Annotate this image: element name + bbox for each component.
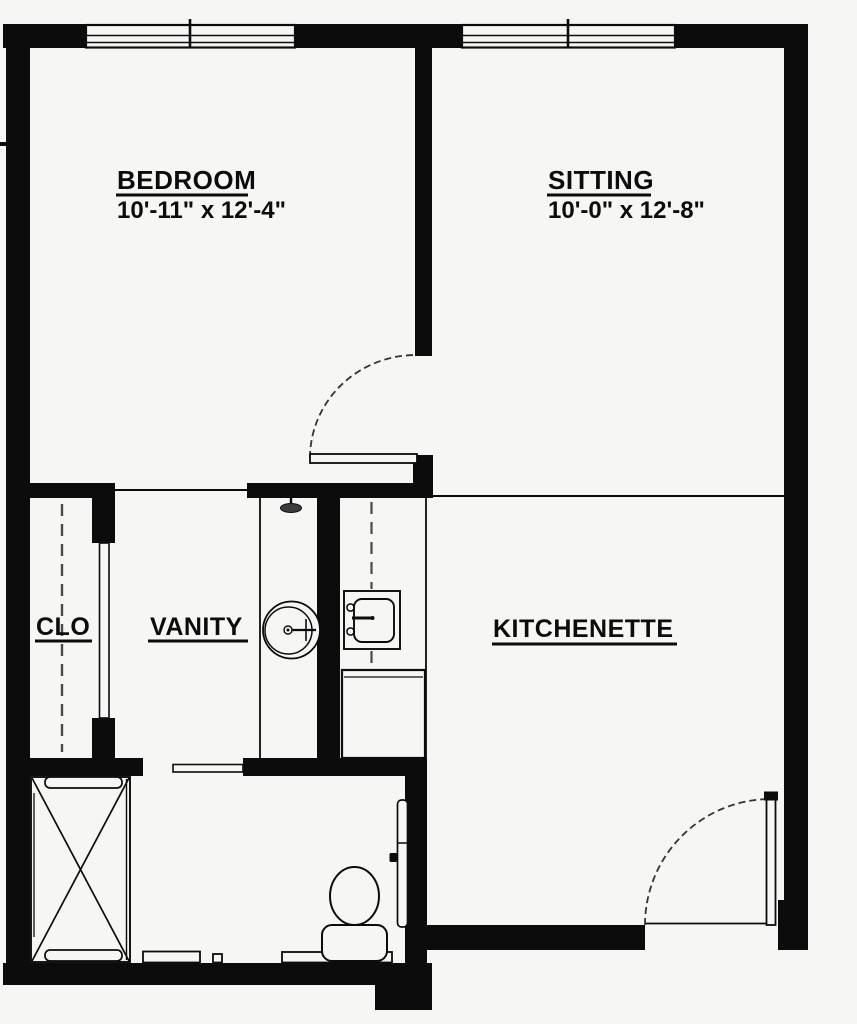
bathroom-door-handle bbox=[390, 853, 398, 862]
wall-bottom-step-block bbox=[375, 963, 432, 1010]
floor-plan-canvas: BEDROOM 10'-11" x 12'-4" SITTING 10'-0" … bbox=[0, 0, 857, 1024]
shower-head-icon bbox=[281, 504, 302, 513]
toilet-bowl bbox=[330, 867, 379, 925]
closet-door-leaf bbox=[100, 543, 110, 718]
room-labels: BEDROOM 10'-11" x 12'-4" SITTING 10'-0" … bbox=[35, 165, 705, 644]
wall-bedroom-south-left bbox=[27, 483, 115, 498]
window-bedroom bbox=[86, 19, 295, 48]
refrigerator bbox=[342, 670, 425, 758]
grab-bar bbox=[143, 952, 200, 963]
wall-closet-right-lower bbox=[92, 718, 115, 760]
bathroom-sliding-door-leaf bbox=[173, 765, 243, 773]
closet-label: CLO bbox=[36, 613, 90, 641]
wall-fixture-small bbox=[213, 954, 222, 963]
wall-right-exterior bbox=[784, 24, 808, 950]
sitting-label: SITTING bbox=[548, 165, 654, 195]
floor-plan-svg: BEDROOM 10'-11" x 12'-4" SITTING 10'-0" … bbox=[0, 0, 857, 1024]
wall-left-tick bbox=[0, 142, 6, 146]
vanity-fixtures bbox=[263, 498, 320, 659]
wall-top-middle bbox=[295, 24, 462, 48]
shower-threshold-top bbox=[45, 777, 122, 788]
bedroom-door-leaf bbox=[310, 454, 417, 463]
wall-bottom-exterior bbox=[3, 963, 377, 985]
wall-closet-right-upper bbox=[92, 498, 115, 543]
kitchen-faucet-tip bbox=[371, 616, 375, 620]
shower-threshold-bottom bbox=[45, 950, 122, 961]
bedroom-door-swing-arc bbox=[310, 355, 416, 458]
toilet-tank bbox=[322, 925, 387, 961]
entry-door bbox=[645, 792, 778, 926]
wall-bathroom-north-right bbox=[243, 758, 427, 776]
vanity-drain-dot bbox=[287, 629, 290, 632]
vanity-label: VANITY bbox=[150, 613, 243, 641]
wall-bedroom-sitting-divider bbox=[415, 24, 432, 356]
wall-bathroom-north-left bbox=[6, 758, 143, 776]
bedroom-dimensions: 10'-11" x 12'-4" bbox=[117, 197, 286, 224]
wall-vanity-kitchenette bbox=[317, 498, 340, 776]
window-sitting bbox=[462, 19, 675, 48]
bathroom-fixtures bbox=[31, 777, 408, 963]
room-boundary-lines bbox=[115, 490, 786, 924]
kitchenette-label: KITCHENETTE bbox=[493, 615, 674, 643]
bedroom-door bbox=[310, 355, 417, 463]
wall-bedroom-south-right bbox=[247, 483, 417, 498]
entry-door-swing-arc bbox=[645, 799, 771, 925]
bathroom-door-leaf bbox=[398, 800, 408, 927]
wall-entry-stub-right bbox=[778, 900, 808, 950]
wall-entry-south bbox=[427, 925, 645, 950]
wall-left-exterior bbox=[6, 24, 30, 985]
bedroom-label: BEDROOM bbox=[117, 165, 256, 195]
entry-door-hinge-block bbox=[764, 792, 778, 801]
entry-door-leaf bbox=[767, 799, 776, 925]
sitting-dimensions: 10'-0" x 12'-8" bbox=[548, 197, 705, 224]
kitchenette-fixtures bbox=[342, 502, 425, 758]
